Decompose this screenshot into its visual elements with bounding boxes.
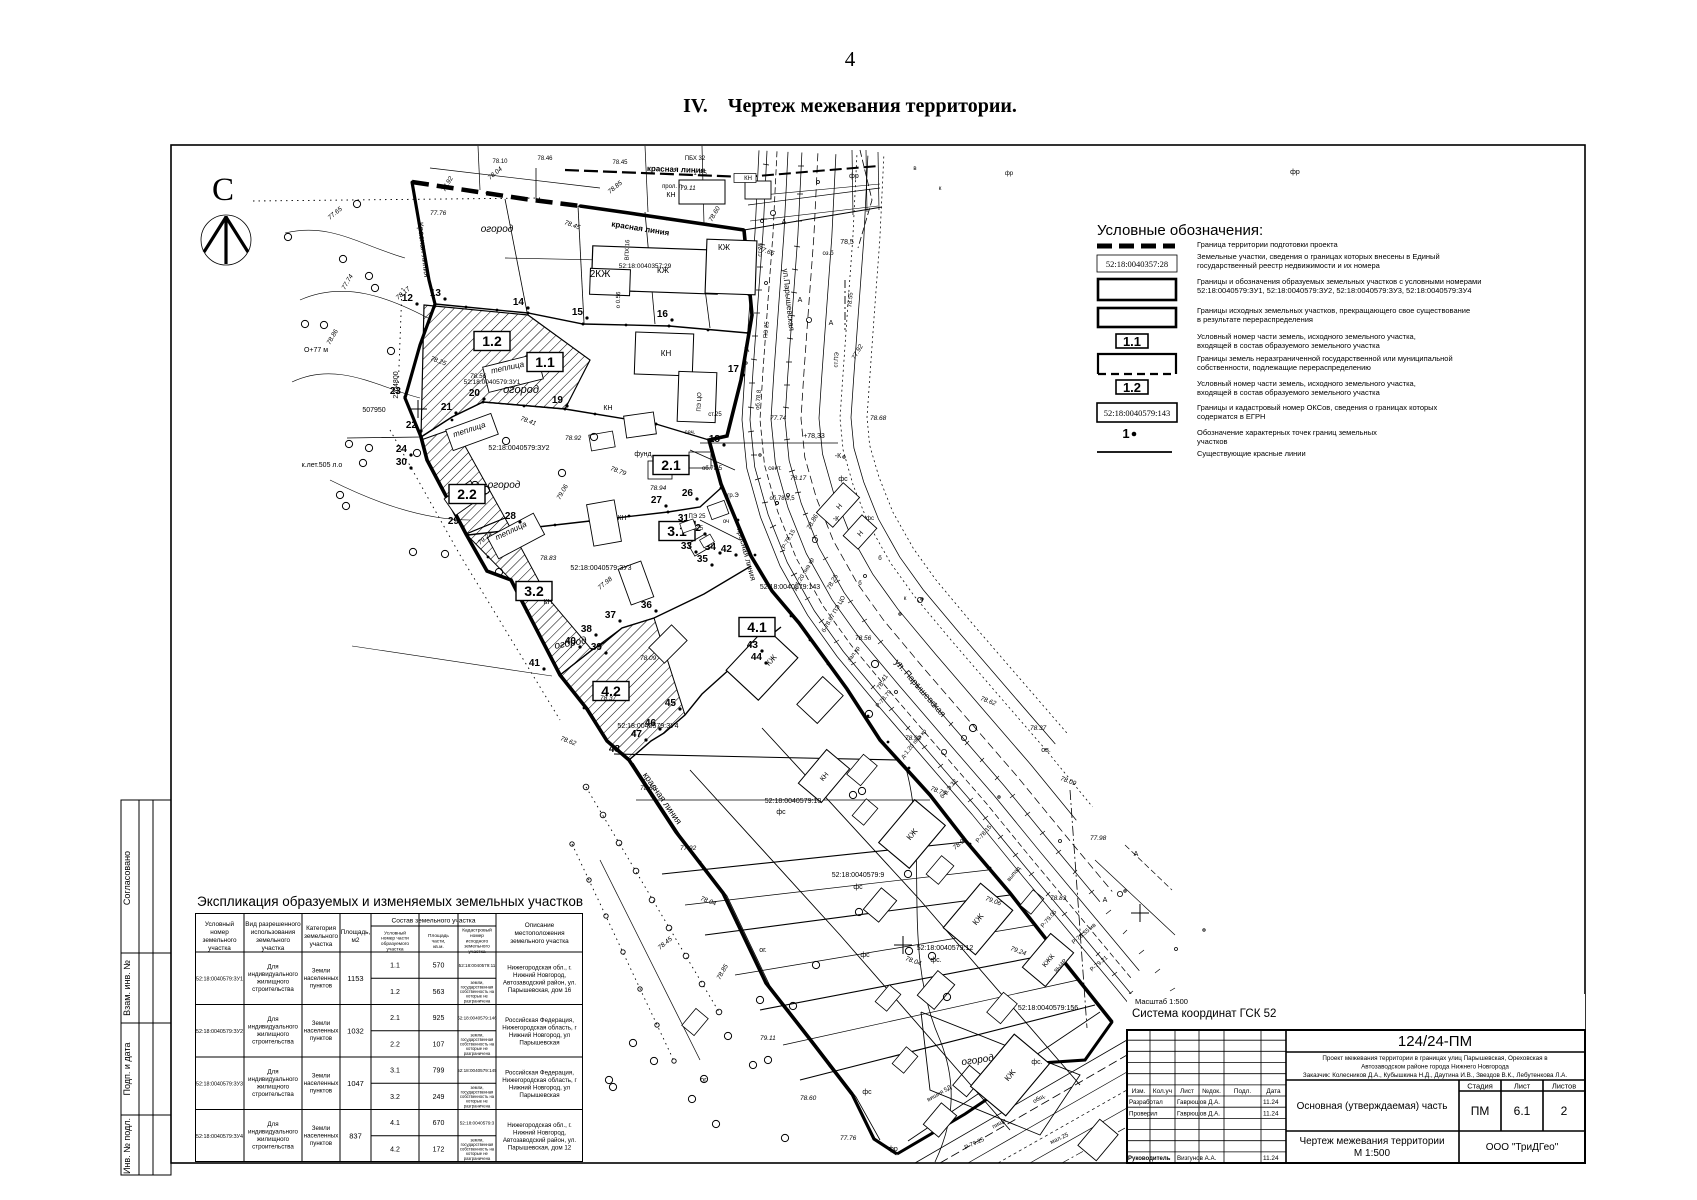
- svg-text:Кол.уч: Кол.уч: [1153, 1088, 1172, 1095]
- svg-text:2204800: 2204800: [393, 371, 400, 398]
- svg-text:Вид разрешенного: Вид разрешенного: [245, 921, 301, 928]
- svg-text:Для: Для: [267, 1121, 278, 1128]
- svg-text:земельного: земельного: [256, 937, 290, 944]
- svg-text:33: 33: [681, 541, 693, 552]
- svg-text:к.лет.505 л.о: к.лет.505 л.о: [302, 462, 343, 469]
- svg-text:-К: -К: [835, 453, 842, 460]
- svg-text:52:18:0040579:156: 52:18:0040579:156: [1018, 1005, 1078, 1012]
- svg-text:77.74: 77.74: [341, 273, 355, 291]
- svg-text:52:18:0040579:11: 52:18:0040579:11: [459, 963, 496, 968]
- svg-text:№док.: №док.: [1202, 1088, 1221, 1095]
- svg-text:570: 570: [433, 963, 445, 970]
- svg-text:Российская Федерация,: Российская Федерация,: [505, 1069, 574, 1076]
- svg-text:Категория: Категория: [306, 925, 336, 932]
- svg-text:52:18:0040579:143: 52:18:0040579:143: [760, 584, 820, 591]
- svg-text:52:18:0040579:ЗУ3: 52:18:0040579:ЗУ3: [196, 1081, 243, 1087]
- svg-text:78.37: 78.37: [1030, 725, 1047, 732]
- svg-text:огород: огород: [488, 480, 521, 491]
- svg-text:Нижегородская область, г: Нижегородская область, г: [502, 1077, 577, 1084]
- svg-text:2: 2: [1561, 1104, 1568, 1118]
- svg-text:Стадия: Стадия: [1467, 1082, 1493, 1091]
- svg-text:28: 28: [505, 511, 517, 522]
- svg-text:78.94: 78.94: [650, 485, 667, 492]
- svg-text:Р-79.25: Р-79.25: [964, 1137, 986, 1152]
- svg-text:2.2: 2.2: [390, 1041, 400, 1048]
- svg-text:78.17: 78.17: [790, 475, 807, 482]
- svg-text:1.2: 1.2: [390, 989, 400, 996]
- svg-text:Земли: Земли: [312, 1020, 331, 1027]
- svg-text:79.24: 79.24: [1009, 945, 1027, 957]
- svg-text:+78,33: +78,33: [803, 433, 825, 440]
- svg-text:ог.: ог.: [759, 947, 767, 954]
- svg-text:78.85: 78.85: [716, 963, 730, 981]
- svg-text:населенных: населенных: [304, 975, 340, 982]
- svg-text:Подп. и дата: Подп. и дата: [122, 1042, 132, 1095]
- svg-text:Лист: Лист: [1180, 1088, 1194, 1095]
- svg-text:Чертеж межевания территории: Чертеж межевания территории: [1299, 1136, 1444, 1147]
- svg-text:б: б: [858, 581, 862, 587]
- svg-text:77.98: 77.98: [597, 575, 614, 591]
- svg-text:зал.кр: зал.кр: [847, 645, 862, 663]
- svg-text:сеч.: сеч.: [685, 430, 696, 436]
- svg-text:Визгунов А.А.: Визгунов А.А.: [1177, 1155, 1217, 1162]
- svg-text:КН: КН: [744, 176, 752, 182]
- svg-text:индивидуального: индивидуального: [248, 1128, 299, 1135]
- svg-text:Нижегородская обл., г.: Нижегородская обл., г.: [507, 964, 572, 971]
- svg-text:4.1: 4.1: [747, 619, 767, 635]
- svg-text:ул.Парышевская: ул.Парышевская: [781, 268, 796, 331]
- svg-text:1: 1: [1122, 426, 1129, 441]
- svg-text:участка: участка: [310, 941, 333, 948]
- svg-text:78.09: 78.09: [1059, 775, 1077, 787]
- svg-text:78.83: 78.83: [1050, 895, 1067, 902]
- svg-text:фс: фс: [862, 1089, 872, 1096]
- svg-text:к: к: [904, 596, 907, 602]
- svg-text:участка: участка: [468, 950, 485, 955]
- svg-text:Основная (утверждаемая) часть: Основная (утверждаемая) часть: [1297, 1101, 1448, 1112]
- svg-text:общ.: общ.: [1032, 1093, 1047, 1105]
- svg-text:фс.: фс.: [930, 957, 941, 964]
- svg-text:ПЭ 25: ПЭ 25: [689, 514, 707, 520]
- svg-text:52:18:0040579:145: 52:18:0040579:145: [457, 1068, 497, 1073]
- svg-text:Нижний Новгород,: Нижний Новгород,: [513, 1129, 566, 1136]
- svg-text:Заказчик: Колесников Д.А., Куб: Заказчик: Колесников Д.А., Кубышкина Н.Д…: [1303, 1071, 1567, 1079]
- svg-text:Проект межевания территории в: Проект межевания территории в границах у…: [1322, 1055, 1548, 1062]
- svg-text:78.37: 78.37: [600, 695, 617, 702]
- svg-text:А: А: [798, 297, 803, 304]
- svg-text:52:18:0040579:3: 52:18:0040579:3: [460, 1121, 495, 1126]
- svg-text:КН: КН: [543, 599, 552, 606]
- svg-text:30: 30: [396, 457, 408, 468]
- svg-text:мал.25: мал.25: [1050, 1132, 1071, 1146]
- svg-text:Для: Для: [267, 1068, 278, 1075]
- svg-text:52:18:0040357:28: 52:18:0040357:28: [1106, 259, 1168, 269]
- svg-text:78.62: 78.62: [559, 735, 577, 747]
- svg-text:3.1: 3.1: [390, 1068, 400, 1075]
- svg-text:населенных: населенных: [304, 1027, 340, 1034]
- svg-text:Парышевская, дом 16: Парышевская, дом 16: [508, 987, 572, 994]
- svg-text:КЖ: КЖ: [718, 243, 731, 252]
- svg-text:1.1: 1.1: [535, 354, 555, 370]
- svg-text:жилищного: жилищного: [257, 1136, 290, 1143]
- svg-text:Р-78.79: Р-78.79: [875, 689, 894, 709]
- svg-text:пунктов: пунктов: [310, 1140, 333, 1147]
- svg-text:78.79: 78.79: [609, 465, 627, 477]
- svg-text:Взам. инв. №: Взам. инв. №: [122, 960, 132, 1016]
- svg-text:фр: фр: [888, 1146, 898, 1153]
- svg-text:11.24: 11.24: [1263, 1099, 1279, 1106]
- svg-text:жилищного: жилищного: [257, 1083, 290, 1090]
- svg-text:А: А: [1134, 851, 1139, 858]
- svg-text:4.1: 4.1: [390, 1120, 400, 1127]
- svg-text:об.78.8: об.78.8: [755, 389, 763, 410]
- svg-text:Лист: Лист: [1514, 1082, 1531, 1091]
- svg-text:КН: КН: [603, 405, 612, 412]
- svg-text:16: 16: [657, 309, 669, 320]
- svg-text:Описание: Описание: [525, 922, 555, 929]
- svg-text:52:18:0040357:29: 52:18:0040357:29: [619, 263, 672, 270]
- svg-text:фс: фс: [853, 884, 863, 891]
- svg-text:45: 45: [665, 698, 677, 709]
- svg-text:18: 18: [709, 434, 721, 445]
- svg-text:строительства: строительства: [252, 986, 294, 993]
- svg-text:Подл.: Подл.: [1234, 1088, 1251, 1095]
- svg-text:78.45: 78.45: [657, 935, 674, 951]
- svg-text:11.24: 11.24: [1263, 1111, 1279, 1118]
- svg-text:21: 21: [441, 402, 453, 413]
- svg-text:77.76: 77.76: [840, 1135, 857, 1142]
- svg-text:использования: использования: [251, 929, 296, 936]
- svg-text:52:18:0040579:12: 52:18:0040579:12: [917, 945, 974, 952]
- svg-text:19: 19: [552, 395, 564, 406]
- svg-text:52:18:0040579:143: 52:18:0040579:143: [1104, 408, 1171, 418]
- svg-text:837: 837: [349, 1131, 362, 1140]
- svg-text:ст.25: ст.25: [708, 412, 722, 418]
- svg-text:52:18:0040579:ЗУ2: 52:18:0040579:ЗУ2: [488, 445, 549, 452]
- svg-text:красная линия: красная линия: [641, 770, 684, 826]
- svg-text:Изм.: Изм.: [1132, 1088, 1146, 1095]
- svg-text:14: 14: [513, 297, 525, 308]
- svg-text:52:18:0040579:ЗУ4: 52:18:0040579:ЗУ4: [196, 1134, 243, 1140]
- svg-text:прол. п: прол. п: [662, 184, 682, 190]
- svg-text:24: 24: [396, 444, 408, 455]
- svg-text:Проверил: Проверил: [1129, 1111, 1158, 1118]
- svg-text:ПБХ 32: ПБХ 32: [685, 156, 706, 162]
- svg-text:77.92: 77.92: [851, 343, 865, 361]
- svg-text:фс: фс: [866, 516, 874, 522]
- svg-text:О+77 м: О+77 м: [304, 347, 328, 354]
- svg-text:48: 48: [609, 744, 621, 755]
- svg-text:ПЭ 25: ПЭ 25: [763, 321, 771, 339]
- svg-text:78.86: 78.86: [806, 513, 820, 531]
- svg-text:78.41: 78.41: [519, 415, 537, 427]
- svg-text:населенных: населенных: [304, 1132, 340, 1139]
- svg-text:индивидуального: индивидуального: [248, 971, 299, 978]
- svg-text:разграничена: разграничена: [464, 1156, 491, 1161]
- svg-text:Р-78.15: Р-78.15: [975, 824, 994, 844]
- svg-text:4.2: 4.2: [390, 1146, 400, 1153]
- svg-text:Руководитель: Руководитель: [1128, 1156, 1171, 1162]
- svg-text:А: А: [745, 347, 750, 354]
- svg-text:А: А: [829, 320, 834, 327]
- svg-text:27: 27: [651, 495, 663, 506]
- svg-text:13: 13: [430, 288, 442, 299]
- svg-text:жилищного: жилищного: [257, 978, 290, 985]
- svg-text:52:18:0040579:10: 52:18:0040579:10: [765, 798, 822, 805]
- svg-text:А: А: [1103, 897, 1108, 904]
- svg-text:799: 799: [433, 1068, 445, 1075]
- svg-text:Нижегородская обл., г.: Нижегородская обл., г.: [507, 1122, 572, 1129]
- svg-text:44: 44: [751, 652, 763, 663]
- svg-text:3.2: 3.2: [524, 583, 544, 599]
- svg-text:Парышевская: Парышевская: [519, 1039, 559, 1046]
- svg-text:д-1.20 пна кр: д-1.20 пна кр: [900, 728, 928, 760]
- svg-text:2КЖ: 2КЖ: [590, 269, 611, 280]
- svg-text:1047: 1047: [347, 1079, 364, 1088]
- svg-text:78.45: 78.45: [612, 160, 628, 166]
- svg-text:Земли: Земли: [312, 967, 331, 974]
- svg-text:2.2: 2.2: [457, 486, 477, 502]
- svg-text:местоположения: местоположения: [514, 930, 565, 937]
- svg-text:пунктов: пунктов: [310, 982, 333, 989]
- svg-text:фс: фс: [860, 952, 870, 959]
- svg-text:Нижний Новгород, ул: Нижний Новгород, ул: [509, 1032, 571, 1039]
- svg-text:11.24: 11.24: [1263, 1155, 1279, 1162]
- svg-text:77.98: 77.98: [1090, 835, 1107, 842]
- svg-text:об.78.8,5: об.78.8,5: [769, 496, 795, 502]
- svg-text:Кадастровый: Кадастровый: [462, 927, 492, 934]
- svg-text:Парышевская: Парышевская: [519, 1092, 559, 1099]
- svg-text:ог.: ог.: [700, 1077, 708, 1084]
- svg-text:41: 41: [529, 658, 541, 669]
- svg-text:52:18:0040579:ЗУ3: 52:18:0040579:ЗУ3: [570, 565, 631, 572]
- svg-text:пунктов: пунктов: [310, 1035, 333, 1042]
- svg-text:26: 26: [682, 488, 694, 499]
- svg-text:Инв. № подл.: Инв. № подл.: [122, 1118, 132, 1174]
- svg-text:КН: КН: [661, 349, 672, 358]
- svg-text:б: б: [878, 556, 882, 562]
- svg-text:к: к: [939, 186, 942, 192]
- svg-text:52:18:0040579:ЗУ1: 52:18:0040579:ЗУ1: [196, 976, 243, 982]
- svg-text:78.92: 78.92: [565, 435, 582, 442]
- svg-text:жилищного: жилищного: [257, 1031, 290, 1038]
- svg-text:номер части: номер части: [381, 937, 409, 942]
- svg-text:фс: фс: [838, 476, 848, 483]
- svg-text:249: 249: [433, 1094, 445, 1101]
- svg-text:78.10: 78.10: [492, 159, 508, 165]
- svg-text:78.83: 78.83: [540, 555, 557, 562]
- svg-text:78.41: 78.41: [876, 673, 890, 691]
- svg-text:Р-79.15: Р-79.15: [781, 528, 797, 550]
- svg-text:39: 39: [591, 642, 603, 653]
- svg-text:строительства: строительства: [252, 1091, 294, 1098]
- svg-text:ст.ПЭ: ст.ПЭ: [833, 351, 840, 368]
- svg-text:о 0.56: о 0.56: [616, 291, 623, 309]
- svg-text:оз.б: оз.б: [822, 251, 834, 257]
- svg-text:79.06: 79.06: [556, 483, 570, 501]
- svg-text:Земли: Земли: [312, 1072, 331, 1079]
- svg-text:фр: фр: [1005, 171, 1014, 177]
- svg-text:43: 43: [747, 640, 759, 651]
- svg-text:-К: -К: [833, 516, 840, 523]
- svg-text:Красная линия: Красная линия: [416, 222, 432, 278]
- svg-text:огород: огород: [481, 224, 514, 235]
- svg-text:35: 35: [697, 554, 709, 565]
- svg-text:ПМ: ПМ: [1471, 1104, 1490, 1118]
- svg-text:77.74: 77.74: [770, 415, 787, 422]
- svg-text:индивидуального: индивидуального: [248, 1023, 299, 1030]
- svg-text:52:18:0040579:9: 52:18:0040579:9: [832, 872, 885, 879]
- svg-text:78.09: 78.09: [640, 655, 657, 662]
- svg-text:1.2: 1.2: [482, 333, 502, 349]
- svg-text:КН: КН: [617, 515, 626, 522]
- svg-text:77.76: 77.76: [430, 210, 447, 217]
- svg-text:ООО "ТриДГео": ООО "ТриДГео": [1486, 1142, 1559, 1153]
- svg-text:С: С: [212, 172, 234, 208]
- svg-text:номер: номер: [470, 934, 484, 939]
- svg-text:78.85: 78.85: [607, 179, 624, 195]
- svg-text:ПЭ ЦО: ПЭ ЦО: [697, 392, 704, 412]
- svg-text:фр: фр: [849, 173, 859, 180]
- svg-text:670: 670: [433, 1120, 445, 1127]
- svg-text:78.04: 78.04: [487, 165, 504, 181]
- svg-text:22: 22: [406, 420, 418, 431]
- svg-text:населенных: населенных: [304, 1080, 340, 1087]
- svg-text:563: 563: [433, 989, 445, 996]
- svg-text:925: 925: [433, 1015, 445, 1022]
- svg-text:38: 38: [581, 624, 593, 635]
- svg-text:М 1:500: М 1:500: [1354, 1148, 1391, 1159]
- svg-text:36: 36: [641, 600, 653, 611]
- svg-text:Автозаводском районе города Ни: Автозаводском районе города Нижнего Новг…: [1361, 1063, 1509, 1071]
- svg-text:исходного: исходного: [466, 939, 489, 944]
- svg-text:52:18:0040579:ЗУ1: 52:18:0040579:ЗУ1: [464, 379, 521, 386]
- svg-text:Парышевская, дом 12: Парышевская, дом 12: [508, 1144, 572, 1151]
- svg-text:78,5: 78,5: [840, 239, 854, 246]
- svg-text:индивидуального: индивидуального: [248, 1076, 299, 1083]
- svg-text:6.1: 6.1: [1514, 1104, 1531, 1118]
- svg-text:Гаврюшов Д.А.: Гаврюшов Д.А.: [1177, 1099, 1220, 1106]
- svg-text:кв.м.: кв.м.: [433, 945, 444, 950]
- svg-text:Листов: Листов: [1552, 1082, 1576, 1091]
- svg-text:части,: части,: [432, 940, 446, 945]
- svg-text:А: А: [782, 219, 787, 226]
- svg-text:вишня 5Д: вишня 5Д: [926, 1085, 952, 1104]
- svg-text:Для: Для: [267, 963, 278, 970]
- svg-text:КН: КН: [666, 192, 675, 199]
- svg-text:участка: участка: [386, 948, 403, 953]
- svg-text:78.56: 78.56: [855, 635, 872, 642]
- svg-text:78.04: 78.04: [699, 895, 717, 907]
- svg-text:52:18:0040579:ЗУ2: 52:18:0040579:ЗУ2: [196, 1029, 243, 1035]
- svg-text:Гаврюшов Д.А.: Гаврюшов Д.А.: [1177, 1111, 1220, 1118]
- svg-text:Российская Федерация,: Российская Федерация,: [505, 1017, 574, 1024]
- svg-text:участка: участка: [262, 945, 285, 952]
- svg-text:пунктов: пунктов: [310, 1087, 333, 1094]
- svg-text:гр.Э: гр.Э: [727, 493, 739, 499]
- svg-text:52:18:0040579:146: 52:18:0040579:146: [457, 1016, 497, 1021]
- svg-text:79.11: 79.11: [760, 1035, 776, 1042]
- svg-text:номер: номер: [210, 929, 229, 936]
- svg-text:ов.: ов.: [1041, 747, 1051, 754]
- svg-text:Земли: Земли: [312, 1125, 331, 1132]
- svg-text:1.1: 1.1: [1123, 334, 1141, 349]
- svg-text:м2: м2: [352, 937, 360, 944]
- svg-text:фунд: фунд: [634, 451, 651, 458]
- svg-text:77.65: 77.65: [327, 205, 344, 221]
- svg-text:разграничена: разграничена: [464, 1103, 491, 1108]
- svg-text:78.60: 78.60: [800, 1095, 817, 1102]
- svg-text:124/24-ПМ: 124/24-ПМ: [1398, 1033, 1472, 1050]
- svg-text:79.11: 79.11: [680, 185, 696, 192]
- svg-text:78.68: 78.68: [640, 785, 657, 792]
- svg-text:3.2: 3.2: [390, 1094, 400, 1101]
- svg-text:Условный: Условный: [384, 929, 406, 936]
- svg-text:29: 29: [448, 516, 460, 527]
- svg-text:сент.: сент.: [768, 466, 782, 472]
- svg-text:разграничена: разграничена: [464, 998, 491, 1003]
- svg-text:1153: 1153: [347, 974, 363, 983]
- svg-text:фр: фр: [1290, 169, 1300, 176]
- svg-text:77.92: 77.92: [680, 845, 697, 852]
- svg-text:фс.: фс.: [1031, 1059, 1042, 1066]
- svg-text:1032: 1032: [347, 1026, 364, 1035]
- svg-text:Разработал: Разработал: [1129, 1099, 1163, 1106]
- svg-text:78.68: 78.68: [870, 415, 887, 422]
- svg-text:земельного: земельного: [202, 937, 236, 944]
- svg-text:оч: оч: [723, 519, 729, 525]
- svg-text:42: 42: [721, 544, 733, 555]
- svg-text:1.2: 1.2: [1123, 380, 1141, 395]
- svg-text:земельного: земельного: [464, 945, 490, 950]
- svg-text:фс: фс: [776, 809, 786, 816]
- svg-text:1.1: 1.1: [390, 963, 400, 970]
- svg-text:1 2 5: 1 2 5: [693, 171, 707, 177]
- svg-text:78.56: 78.56: [470, 373, 487, 380]
- svg-text:Р-79.05: Р-79.05: [1040, 909, 1059, 929]
- svg-text:строительства: строительства: [252, 1143, 294, 1150]
- svg-text:об.78,5: об.78,5: [702, 466, 723, 472]
- svg-text:земельного: земельного: [304, 933, 338, 940]
- svg-text:20: 20: [469, 388, 481, 399]
- svg-text:Согласовано: Согласовано: [122, 851, 132, 905]
- svg-text:78.60: 78.60: [708, 205, 722, 223]
- svg-text:2.1: 2.1: [661, 457, 681, 473]
- svg-text:Нижегородская область, г: Нижегородская область, г: [502, 1024, 577, 1031]
- svg-text:Площадь,: Площадь,: [341, 929, 371, 936]
- svg-text:Нижний Новгород,: Нижний Новгород,: [513, 972, 566, 979]
- svg-text:в: в: [913, 166, 916, 172]
- svg-text:172: 172: [433, 1146, 445, 1153]
- svg-text:507950: 507950: [362, 407, 385, 414]
- svg-text:78.62: 78.62: [979, 695, 997, 707]
- svg-text:Автозаводский район, ул.: Автозаводский район, ул.: [503, 979, 576, 986]
- svg-text:2.1: 2.1: [390, 1015, 400, 1022]
- svg-text:Условный: Условный: [205, 920, 235, 928]
- svg-text:15: 15: [572, 307, 584, 318]
- svg-text:красная линия: красная линия: [611, 220, 670, 238]
- svg-text:Состав земельного участка: Состав земельного участка: [391, 918, 475, 925]
- svg-text:78.92: 78.92: [905, 735, 922, 742]
- svg-text:Для: Для: [267, 1016, 278, 1023]
- svg-text:Нижний Новгород, ул: Нижний Новгород, ул: [509, 1084, 571, 1091]
- svg-text:земельного участка: земельного участка: [510, 938, 569, 945]
- svg-text:17: 17: [728, 364, 740, 375]
- svg-text:ВПХ 16: ВПХ 16: [625, 239, 632, 261]
- svg-text:78.46: 78.46: [537, 156, 553, 162]
- svg-text:52:18:0040579:ЗУ4: 52:18:0040579:ЗУ4: [617, 723, 678, 730]
- svg-text:разграничена: разграничена: [464, 1051, 491, 1056]
